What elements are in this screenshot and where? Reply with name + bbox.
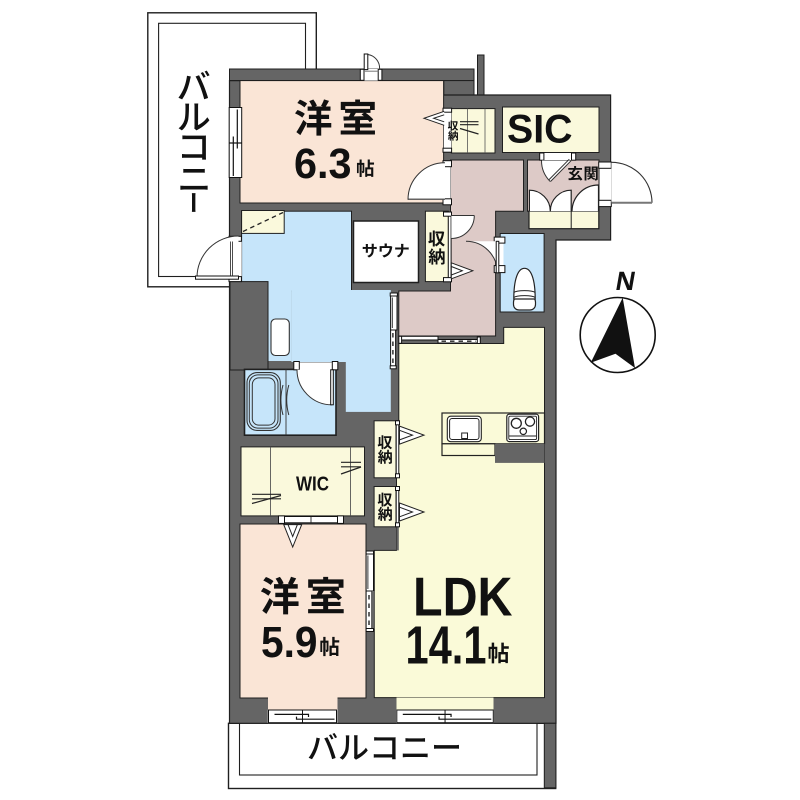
svg-text:5.9: 5.9: [261, 619, 318, 667]
svg-text:WIC: WIC: [296, 474, 329, 496]
svg-text:6.3: 6.3: [294, 141, 352, 188]
svg-text:SIC: SIC: [507, 108, 573, 152]
svg-text:LDK: LDK: [413, 566, 513, 627]
